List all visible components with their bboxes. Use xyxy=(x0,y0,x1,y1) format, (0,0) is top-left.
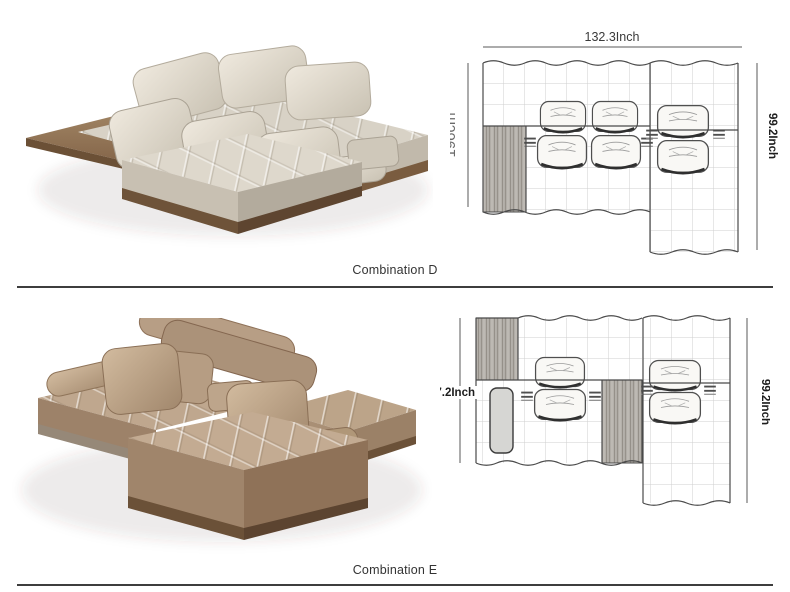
dim-label-depth-inch: 99.2Inch xyxy=(759,379,770,425)
dim-label-depth-left: 77.2Inch xyxy=(440,387,475,399)
mid-table-wood xyxy=(602,380,642,463)
corner-table-wood xyxy=(476,318,518,380)
dim-label-depth-cm: 196cm xyxy=(450,112,459,157)
sofa-3d-render-d xyxy=(18,38,433,256)
tray xyxy=(490,388,513,453)
sofa-3d-render-e xyxy=(12,318,432,570)
combination-d-section: 132.3Inch 196cm 99.2Inch Combination D xyxy=(0,0,790,287)
plan-pillows xyxy=(524,102,725,174)
dim-label-width: 132.3Inch xyxy=(585,30,640,44)
dimension-diagram-e: 132.3Inch 77.2Inch 99.2Inch xyxy=(440,313,770,553)
separator-line xyxy=(17,584,773,586)
caption-combination-e: Combination E xyxy=(0,563,790,577)
caption-combination-d: Combination D xyxy=(0,263,790,277)
combination-e-section: 132.3Inch 77.2Inch 99.2Inch Combination … xyxy=(0,288,790,592)
dimension-diagram-d: 132.3Inch 196cm 99.2Inch xyxy=(450,30,780,260)
dim-label-depth-inch: 99.2Inch xyxy=(766,113,778,159)
side-table-wood xyxy=(483,126,526,212)
